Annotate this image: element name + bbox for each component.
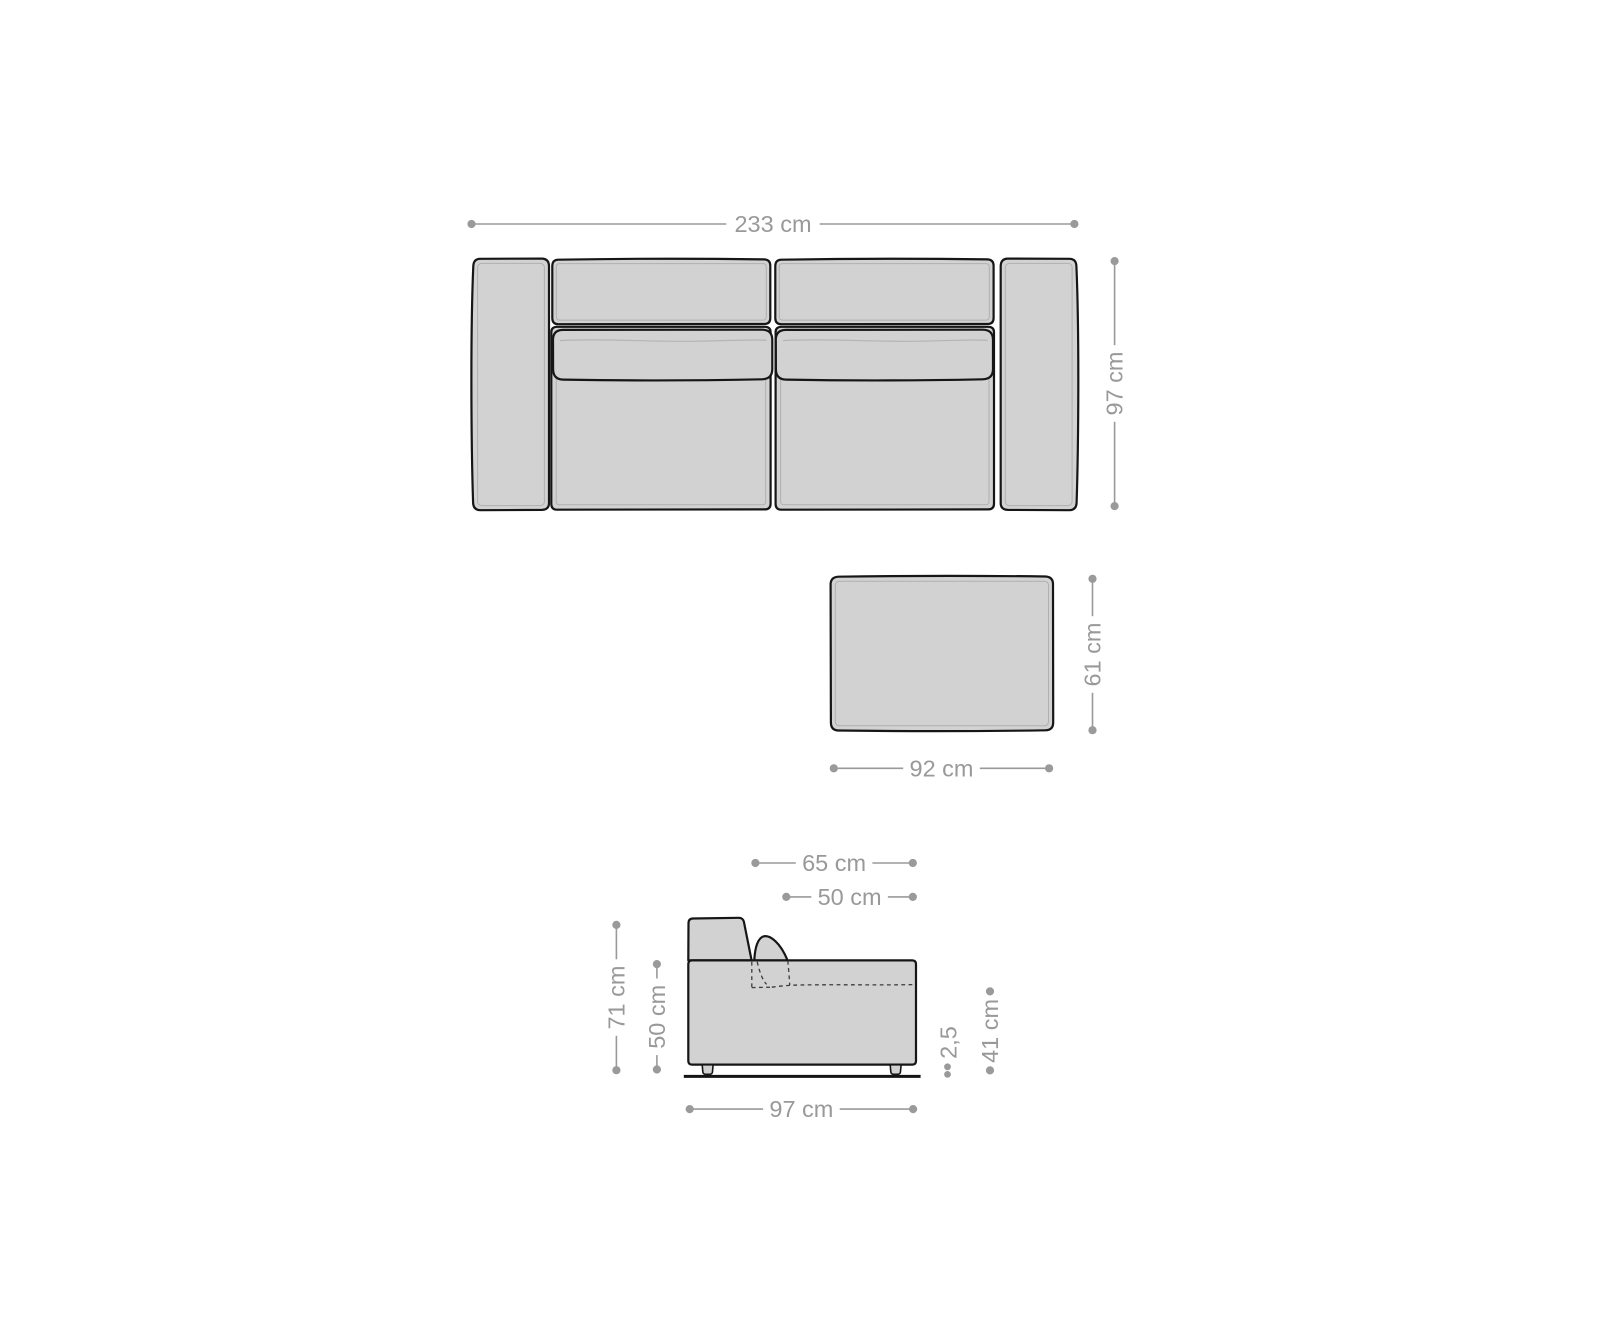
svg-text:41 cm: 41 cm — [977, 999, 1003, 1063]
svg-text:97 cm: 97 cm — [769, 1096, 833, 1122]
svg-text:50 cm: 50 cm — [818, 884, 882, 910]
svg-text:92 cm: 92 cm — [910, 755, 974, 781]
svg-text:2,5: 2,5 — [936, 1026, 962, 1059]
svg-text:97 cm: 97 cm — [1102, 352, 1128, 416]
svg-text:65 cm: 65 cm — [802, 850, 866, 876]
svg-text:233 cm: 233 cm — [734, 211, 811, 237]
svg-text:50 cm: 50 cm — [644, 985, 670, 1049]
svg-text:71 cm: 71 cm — [603, 966, 629, 1030]
svg-text:61 cm: 61 cm — [1080, 623, 1106, 687]
